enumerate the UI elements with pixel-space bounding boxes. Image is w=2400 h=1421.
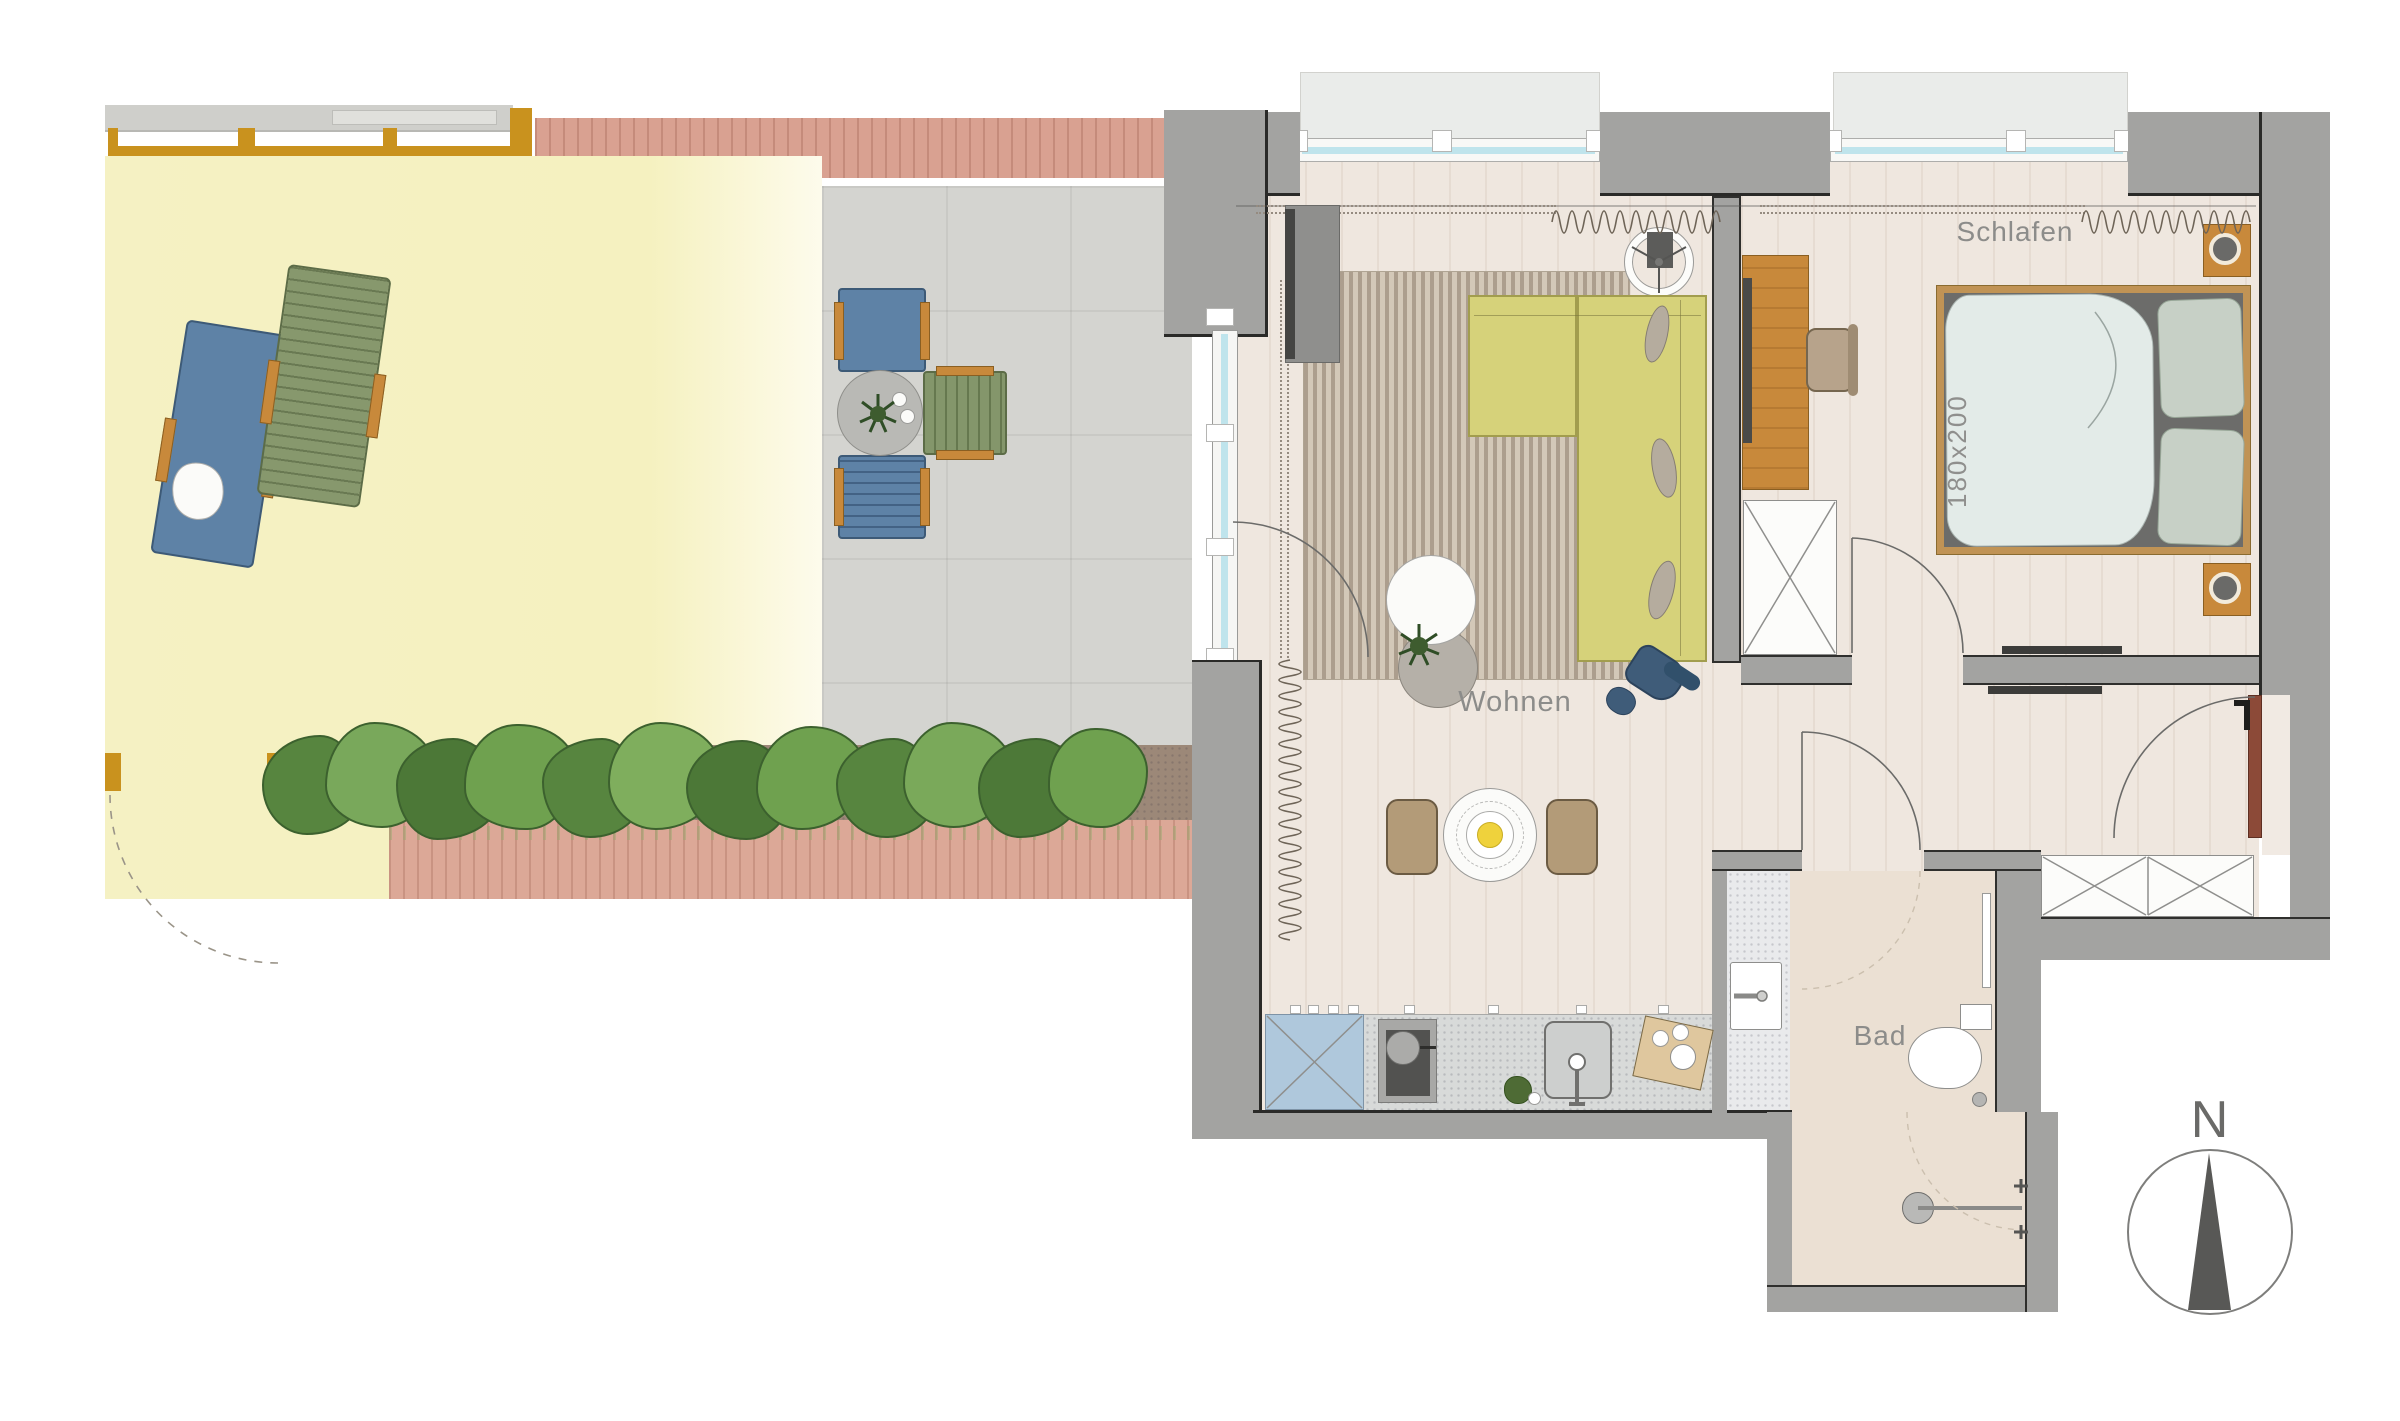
egg: [1652, 1030, 1669, 1047]
shower-arm: [1918, 1206, 2022, 1210]
entry-door-handle: [2244, 700, 2250, 730]
wall-bath-top-left: [1712, 850, 1802, 871]
bedroom-window-glass: [1835, 147, 2123, 154]
cabinet-handle: [1404, 1005, 1415, 1014]
patio-chair-right: [923, 371, 1007, 455]
desk-chair-back: [1848, 324, 1858, 396]
nightstand-lamp: [2209, 233, 2241, 265]
pergola-corner: [510, 108, 532, 156]
gate-post: [105, 753, 121, 791]
ceiling-fan-motor: [1647, 232, 1673, 268]
wall-hall-slab: [2035, 917, 2330, 960]
window-sill-mark: [2006, 130, 2026, 152]
pot: [1386, 1031, 1420, 1065]
room-label-bath: Bad: [1850, 1020, 1910, 1052]
passage-floor: [1712, 663, 1741, 850]
patio-cup: [892, 392, 907, 407]
sofa-seam: [1680, 300, 1681, 656]
wall-living-bedroom-divider: [1712, 196, 1741, 663]
dining-chair-left: [1386, 799, 1438, 875]
pergola-post-stub: [383, 128, 397, 150]
coffee-table: [1386, 555, 1476, 645]
sliding-door-track: [2002, 646, 2122, 654]
cabinet-handle: [1308, 1005, 1319, 1014]
pendant-lamp: [1477, 822, 1503, 848]
wall-east: [2259, 112, 2330, 695]
curtain-track: [1280, 280, 1282, 658]
patio-chair-right-arm: [936, 366, 994, 376]
cabinet-handle: [1576, 1005, 1587, 1014]
patio-chair-top: [838, 288, 926, 372]
west-window-glass: [1221, 334, 1228, 658]
desk: [1742, 255, 1809, 490]
entry-door-leaf: [2248, 695, 2262, 838]
desk-chair: [1806, 328, 1854, 392]
window-sill-mark: [1206, 538, 1234, 556]
curtain-track: [1760, 212, 2085, 214]
compass-circle: [2127, 1149, 2293, 1315]
cabinet-handle: [1290, 1005, 1301, 1014]
hall-wardrobe: [2041, 855, 2254, 917]
pergola-post-stub: [238, 128, 255, 150]
kitchen-dot: [1528, 1092, 1541, 1105]
window-sill-mark: [1206, 308, 1234, 326]
compass-north-label: N: [2180, 1090, 2240, 1150]
cabinet-handle: [1348, 1005, 1359, 1014]
cabinet-handle: [1658, 1005, 1669, 1014]
wall-bath-ext-left: [1767, 1112, 1792, 1312]
curtain-track: [1760, 205, 2085, 207]
duvet: [1945, 293, 2155, 547]
wall-pier-mid: [1600, 112, 1830, 196]
egg: [1672, 1024, 1689, 1041]
entry-corridor-floor: [2262, 690, 2290, 855]
sofa-chaise: [1468, 295, 1577, 437]
bath-mirror: [1982, 893, 1991, 988]
cabinet-handle: [1488, 1005, 1499, 1014]
wall-bath-ext-bottom: [1767, 1285, 2058, 1312]
patio-chair-right-arm: [936, 450, 994, 460]
room-label-living: Wohnen: [1450, 686, 1580, 719]
floor-plan: Wohnen Schlafen Bad 180x200 N: [0, 0, 2400, 1421]
wall-bath-left: [1712, 871, 1727, 1139]
hedge-bush: [1048, 728, 1148, 828]
dining-chair-right: [1546, 799, 1598, 875]
bed-pillow: [2157, 298, 2245, 419]
pot-handle: [1420, 1046, 1436, 1049]
wall-west-corner: [1164, 110, 1268, 337]
bath-sink: [1730, 962, 1782, 1030]
wall-bath-top-right: [1924, 850, 2041, 871]
wall-east-outer-low: [2290, 663, 2330, 960]
wall-bedroom-south-left: [1741, 655, 1852, 685]
wall-bath-ext-right: [2025, 1112, 2058, 1312]
toilet-tank: [1960, 1004, 1992, 1030]
wall-bedroom-south-right: [1963, 655, 2259, 685]
cabinet-handle: [1328, 1005, 1339, 1014]
tv-panel: [1285, 209, 1295, 359]
bedroom-wardrobe: [1743, 500, 1837, 655]
bed-pillow: [2157, 428, 2245, 547]
patio-chair-bottom-arm: [834, 468, 844, 526]
fridge-unit: [1265, 1014, 1364, 1110]
room-label-bedroom: Schlafen: [1950, 216, 2080, 248]
window-sill-mark: [1432, 130, 1452, 152]
laptop: [1743, 278, 1752, 443]
patio-chair-top-arm: [920, 302, 930, 360]
patio-chair-bottom-arm: [920, 468, 930, 526]
wall-west-lower: [1192, 660, 1262, 1139]
sliding-door-track: [1988, 686, 2102, 694]
sofa-main: [1577, 295, 1707, 662]
nightstand-lamp: [2209, 572, 2241, 604]
pergola-post-stub: [108, 128, 118, 150]
wall-bath-right: [1995, 871, 2041, 1112]
neighbor-window: [332, 110, 497, 125]
bed-size-label: 180x200: [1942, 368, 1973, 508]
window-sill-mark: [1206, 424, 1234, 442]
toilet-flush: [1972, 1092, 1987, 1107]
kitchen-sink: [1544, 1021, 1612, 1099]
patio-cup: [900, 409, 915, 424]
patio-chair-top-arm: [834, 302, 844, 360]
toilet-bowl: [1908, 1027, 1982, 1089]
bowl: [1670, 1044, 1696, 1070]
patio-chair-bottom: [838, 455, 926, 539]
pergola-beam: [108, 146, 532, 156]
